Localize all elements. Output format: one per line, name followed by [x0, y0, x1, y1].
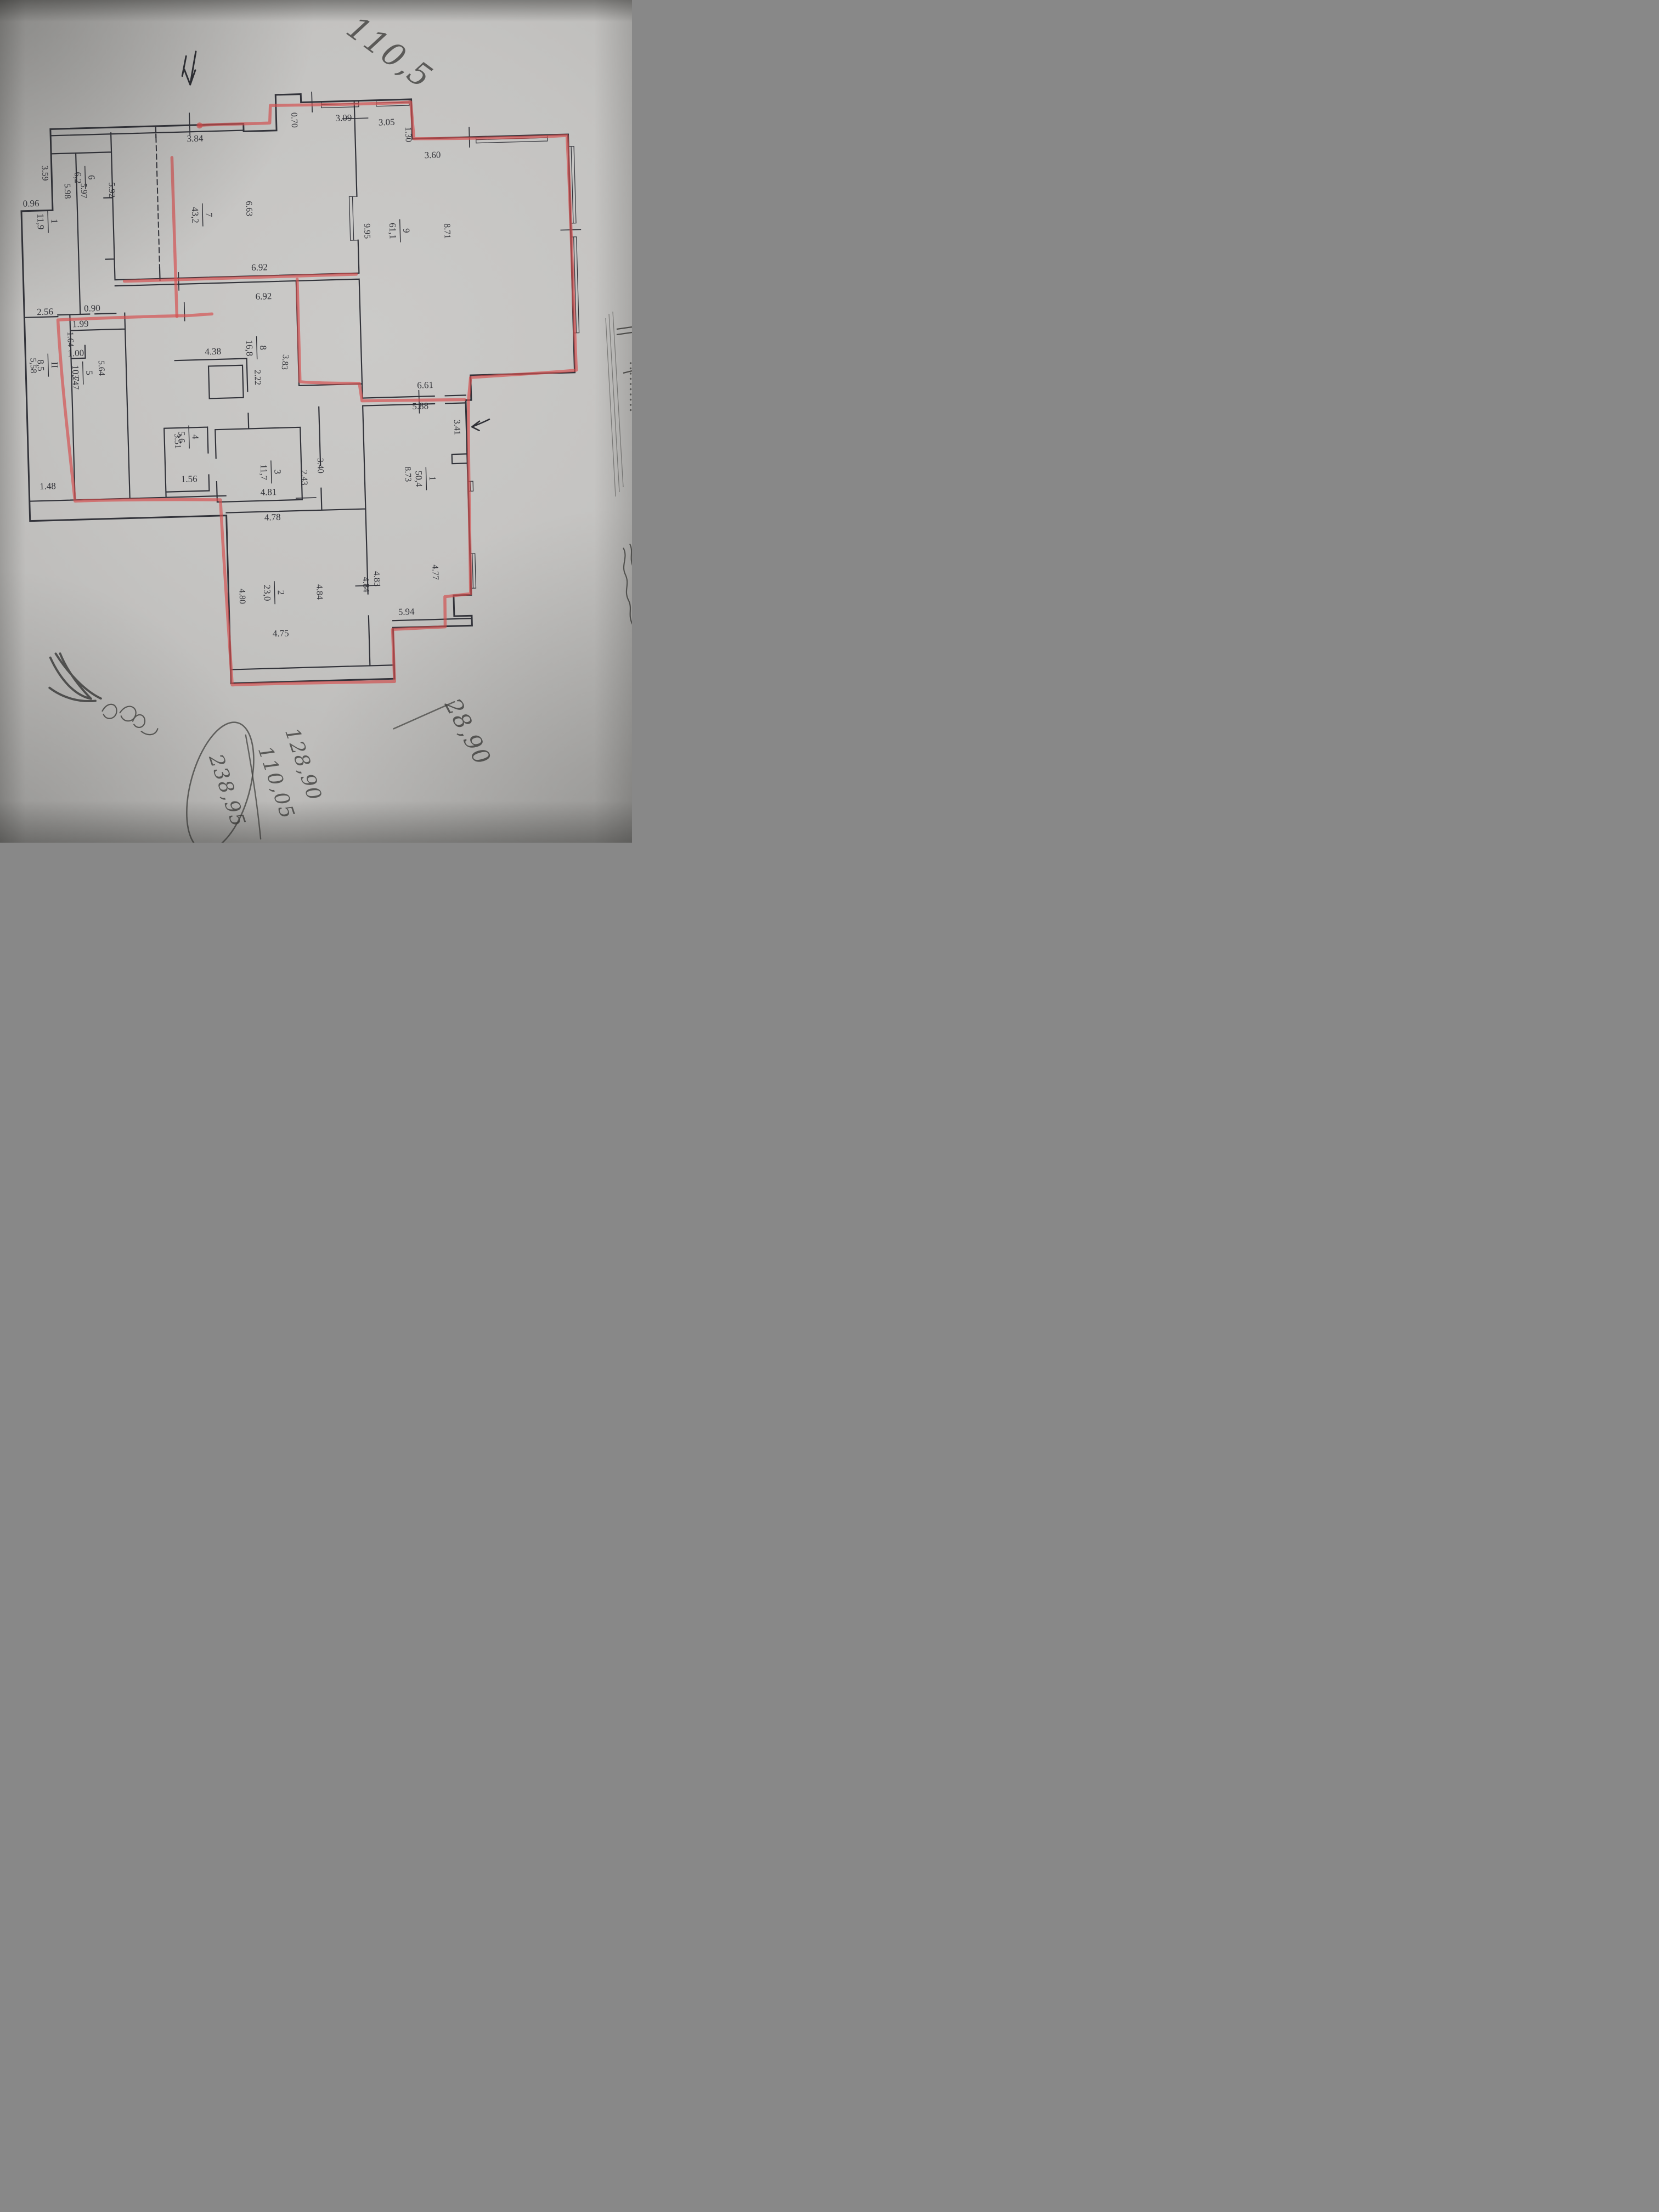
dimension-labels: 3.840.703.093.051.303.608.719.956.635.92… — [20, 108, 467, 646]
handwritten-cursive-right-edge — [623, 544, 632, 644]
fraction-bar — [189, 426, 189, 449]
room-number: 1 — [49, 219, 59, 224]
dimension-label: 1.64 — [65, 331, 75, 347]
dimension-label: 3.84 — [187, 133, 204, 144]
dimension-label: 2.43 — [299, 470, 309, 485]
room-number: 8 — [258, 345, 268, 350]
fraction-bar — [274, 581, 275, 604]
room-area: 61,1 — [387, 223, 398, 239]
dimension-label: 3.41 — [452, 420, 462, 435]
room-number: 9 — [401, 228, 411, 233]
room-number: 5 — [84, 370, 94, 375]
dimension-label: 4.38 — [205, 346, 221, 357]
room-number: 3 — [272, 470, 283, 475]
dimension-label: 3.05 — [379, 117, 395, 128]
room-area: 23,0 — [262, 584, 273, 601]
handwritten-scribble-bottom-left-bold — [49, 652, 101, 702]
red-marker-start-blob — [196, 122, 202, 128]
dimension-label: 5.94 — [398, 606, 415, 617]
dimension-label: 5.92 — [107, 182, 117, 198]
room-area-labels: 111,966,2743,2961,1816,8510,7II8,545,631… — [30, 156, 441, 611]
dimension-label: 5.97 — [79, 183, 89, 198]
dimension-label: 0.96 — [22, 198, 39, 209]
dimension-label: 4.75 — [273, 628, 289, 639]
dimension-label: 3.09 — [335, 112, 352, 123]
dimension-label: 5.64 — [97, 360, 106, 376]
room-label: II8,5 — [35, 353, 60, 377]
handwritten-numbers: 110,528,90128,90110,05238,95 — [183, 5, 498, 831]
dimension-label: 0.70 — [289, 112, 299, 128]
room-area: 43,2 — [190, 207, 201, 223]
room-number: 7 — [204, 212, 214, 218]
dimension-label: 9.95 — [362, 223, 372, 239]
dimension-label: 3.83 — [280, 354, 291, 370]
room-area: 6,2 — [72, 172, 83, 184]
room-label: 510,7 — [70, 361, 95, 385]
room-area: 11,7 — [258, 464, 269, 481]
handwritten-number: 238,95 — [204, 751, 250, 831]
fraction-bar — [257, 336, 257, 359]
room-area: 16,8 — [244, 340, 255, 356]
fraction-bar — [48, 210, 48, 233]
dimension-label: 1.56 — [181, 473, 198, 484]
margin-underline-marks — [617, 327, 632, 373]
fraction-bar — [202, 204, 203, 227]
dimension-label: 4.80 — [237, 589, 247, 604]
dimension-label: 1.48 — [39, 481, 56, 492]
room-label: 743,2 — [190, 203, 215, 227]
dimension-label: 4.84 — [314, 584, 324, 600]
dimension-label: 1.30 — [403, 127, 413, 142]
dimension-label: 3.60 — [424, 149, 441, 160]
room-label: 816,8 — [244, 336, 269, 359]
room-number: 1 — [427, 476, 438, 481]
red-marker-trace-branch-left — [172, 157, 177, 317]
room-area: 50,4 — [413, 471, 424, 488]
handwritten-number: 110,5 — [340, 9, 439, 96]
dimension-label: 3.59 — [40, 165, 50, 180]
fraction-bar — [83, 362, 83, 385]
arrow-top-left — [182, 52, 197, 85]
fraction-bar — [426, 467, 426, 490]
fraction-bar — [271, 460, 272, 483]
fraction-bar — [400, 219, 400, 242]
dimension-ticks — [173, 85, 590, 591]
dimension-label: 4.81 — [260, 487, 276, 498]
room-area: 10,7 — [70, 365, 81, 382]
red-marker-trace-main — [52, 97, 585, 691]
dimension-label: 2.22 — [252, 370, 262, 385]
dimension-label: 6.61 — [417, 380, 433, 391]
arrow-right-entrance — [472, 419, 490, 431]
dimension-label: 8.71 — [442, 223, 452, 239]
room-number: 6 — [86, 175, 97, 180]
dimension-label: 8.73 — [403, 466, 413, 482]
dimension-label: 6.92 — [255, 291, 272, 302]
room-label: 223,0 — [262, 581, 286, 605]
dimension-label: 5.88 — [412, 400, 428, 411]
outer-wall-outline — [18, 87, 583, 689]
dimension-label: 6.92 — [251, 262, 268, 273]
fraction-bar — [48, 354, 48, 377]
adjacent-page-lines — [606, 312, 623, 496]
dimension-label: 4.83 — [372, 571, 382, 586]
dimension-label: 4.77 — [430, 565, 440, 580]
dimension-label: 5.98 — [63, 183, 72, 199]
room-label: 961,1 — [387, 219, 412, 242]
room-area: 8,5 — [36, 359, 47, 371]
room-number: 2 — [275, 590, 286, 595]
perforation-dots — [630, 362, 631, 411]
dimension-label: 4.78 — [264, 512, 281, 523]
room-label: 111,9 — [35, 210, 60, 233]
dimension-label: 1.99 — [72, 319, 89, 330]
dimension-label: 6.63 — [244, 201, 254, 216]
dimension-label: 3.40 — [315, 458, 325, 473]
room-label: 150,4 — [413, 467, 438, 490]
handwritten-scribble-bottom-left-loops — [102, 703, 158, 736]
floor-plan-svg: 3.840.703.093.051.303.608.719.956.635.92… — [0, 0, 632, 843]
paper-photo: 3.840.703.093.051.303.608.719.956.635.92… — [0, 0, 632, 843]
dimension-label: 0.90 — [84, 303, 100, 314]
dimension-label: 1.00 — [67, 348, 84, 359]
dashed-partition — [156, 137, 160, 268]
room-number: II — [49, 362, 60, 368]
room-number: 4 — [190, 435, 200, 440]
page-artifacts — [606, 312, 632, 496]
plan-tilted-group: 3.840.703.093.051.303.608.719.956.635.92… — [16, 2, 632, 843]
room-label: 311,7 — [258, 460, 283, 484]
room-area: 11,9 — [35, 213, 46, 230]
dimension-label: 4.84 — [361, 577, 371, 592]
room-area: 5,6 — [176, 431, 187, 443]
dimension-label: 2.56 — [37, 306, 53, 317]
